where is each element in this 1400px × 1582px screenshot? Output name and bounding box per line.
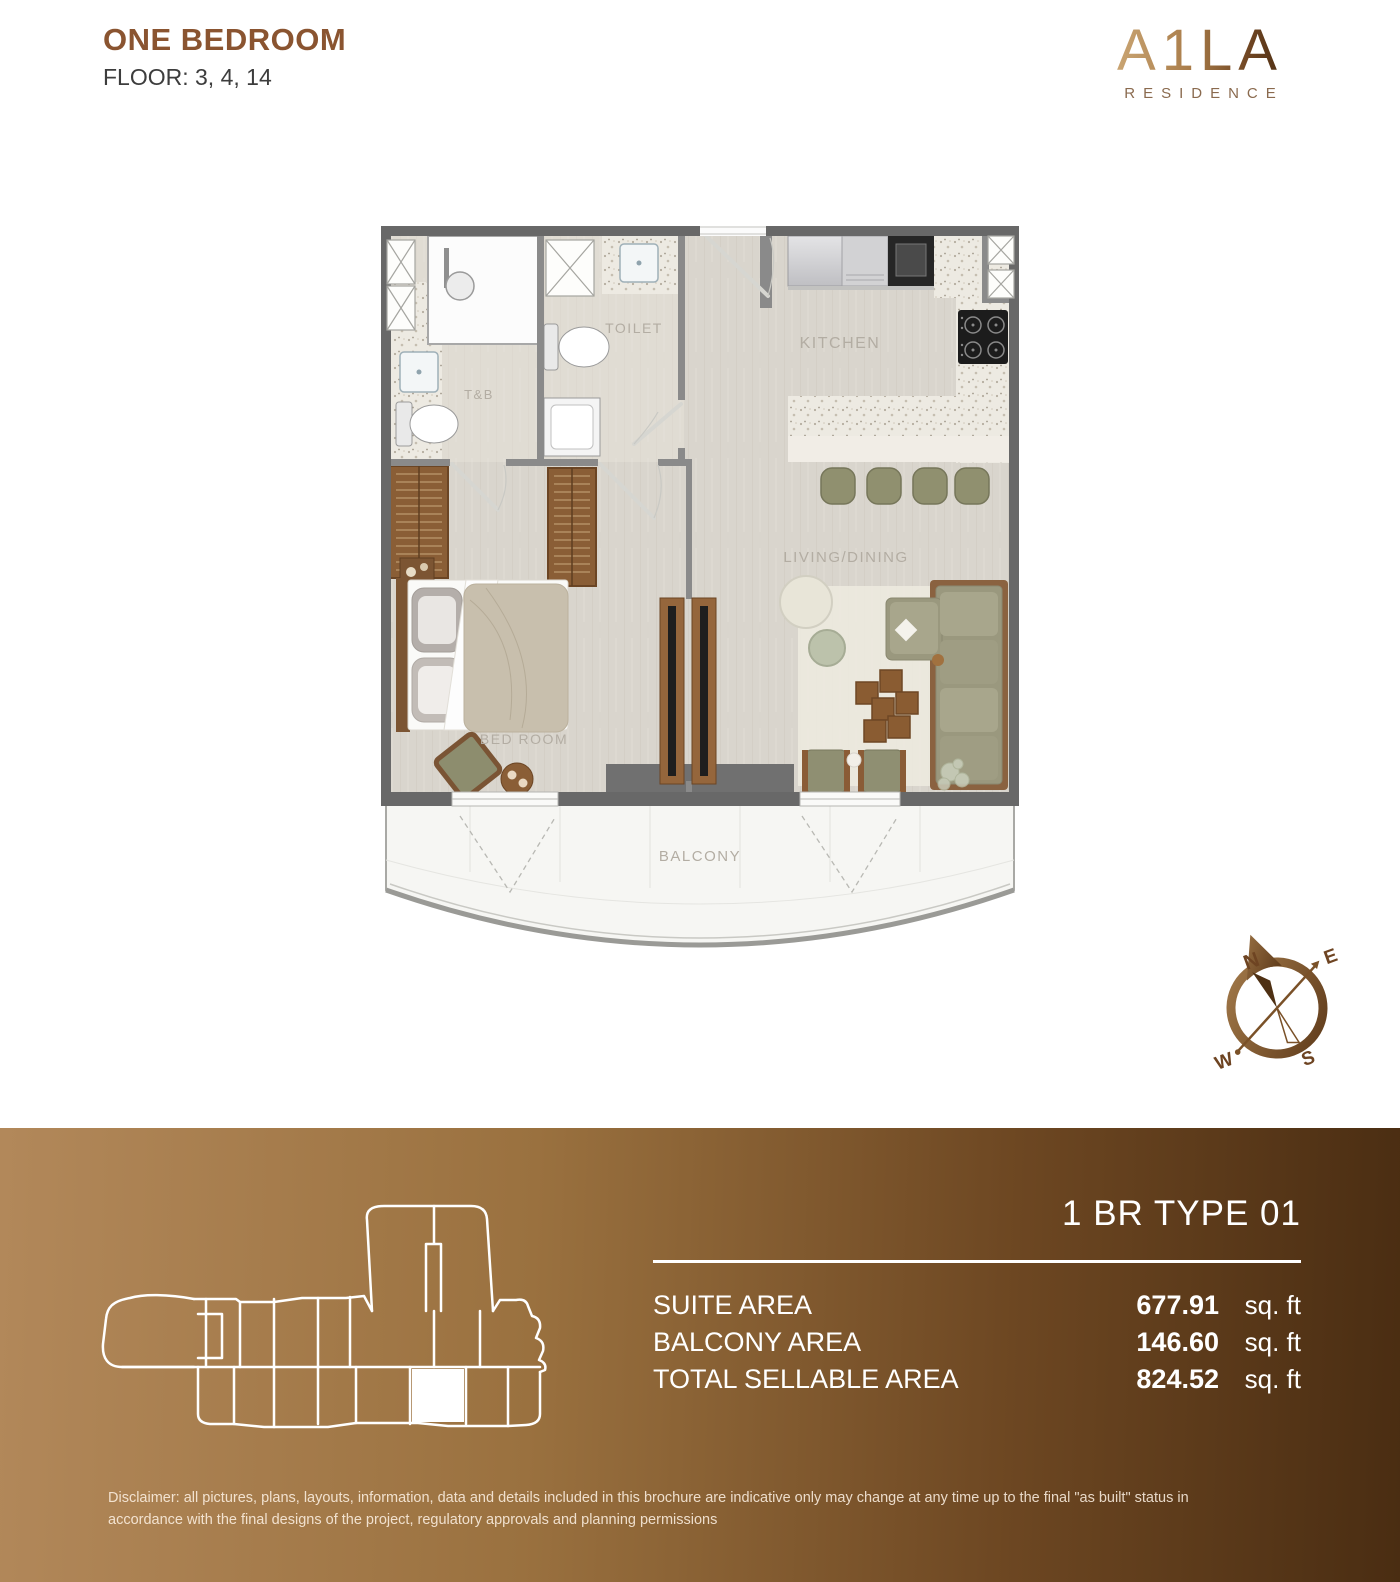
room-label-bedroom: BED ROOM bbox=[480, 731, 568, 747]
balcony bbox=[386, 798, 1014, 945]
brand-logo-mark: A1LA bbox=[1080, 18, 1320, 80]
floor-plan: T&B TOILET KITCHEN LIVING/DINING BED ROO… bbox=[376, 222, 1024, 968]
side-table bbox=[501, 763, 533, 795]
key-plan bbox=[88, 1186, 572, 1444]
room-label-tb: T&B bbox=[464, 387, 494, 402]
brand-name: A1LA bbox=[1117, 18, 1283, 80]
area-unit: sq. ft bbox=[1219, 1324, 1301, 1361]
entry-opening bbox=[700, 226, 766, 236]
page: ONE BEDROOM FLOOR: 3, 4, 14 A1LA RESIDEN… bbox=[0, 0, 1400, 1582]
area-unit: sq. ft bbox=[1219, 1361, 1301, 1398]
compass-needle bbox=[1252, 968, 1280, 1012]
toilet-bowl bbox=[559, 327, 609, 367]
shower-head bbox=[446, 272, 474, 300]
key-plan-highlighted-unit bbox=[412, 1369, 464, 1422]
room-label-living: LIVING/DINING bbox=[783, 549, 908, 566]
area-row-total: TOTAL SELLABLE AREA 824.52 sq. ft bbox=[653, 1361, 1301, 1398]
room-label-balcony: BALCONY bbox=[659, 848, 741, 865]
tb-toilet bbox=[410, 405, 458, 443]
kitchen-island bbox=[788, 396, 1014, 436]
toilet-tank bbox=[544, 324, 558, 370]
room-label-kitchen: KITCHEN bbox=[800, 335, 881, 352]
brand-tagline: RESIDENCE bbox=[1080, 85, 1320, 102]
room-label-toilet: TOILET bbox=[605, 320, 663, 336]
compass: N E W S bbox=[1192, 916, 1362, 1086]
page-title: ONE BEDROOM bbox=[103, 22, 346, 58]
floor-numbers: FLOOR: 3, 4, 14 bbox=[103, 64, 346, 91]
area-row-balcony: BALCONY AREA 146.60 sq. ft bbox=[653, 1324, 1301, 1361]
dishwasher bbox=[842, 236, 888, 286]
disclaimer-text: Disclaimer: all pictures, plans, layouts… bbox=[108, 1487, 1198, 1532]
duvet bbox=[464, 584, 568, 732]
area-info: 1 BR TYPE 01 SUITE AREA 677.91 sq. ft BA… bbox=[653, 1194, 1301, 1398]
area-value: 677.91 bbox=[1089, 1287, 1219, 1324]
unit-type-label: 1 BR TYPE 01 bbox=[653, 1194, 1301, 1234]
area-value: 824.52 bbox=[1089, 1361, 1219, 1398]
area-label: TOTAL SELLABLE AREA bbox=[653, 1361, 1089, 1398]
area-row-suite: SUITE AREA 677.91 sq. ft bbox=[653, 1287, 1301, 1324]
compass-s: S bbox=[1299, 1047, 1318, 1071]
fridge bbox=[788, 236, 842, 286]
bed bbox=[396, 558, 568, 732]
area-value: 146.60 bbox=[1089, 1324, 1219, 1361]
compass-e: E bbox=[1321, 945, 1340, 969]
header: ONE BEDROOM FLOOR: 3, 4, 14 bbox=[103, 22, 346, 91]
area-label: SUITE AREA bbox=[653, 1287, 1089, 1324]
footer: 1 BR TYPE 01 SUITE AREA 677.91 sq. ft BA… bbox=[0, 1128, 1400, 1582]
divider-line bbox=[653, 1260, 1301, 1263]
key-plan-tower bbox=[367, 1206, 493, 1311]
compass-w: W bbox=[1212, 1049, 1236, 1075]
area-label: BALCONY AREA bbox=[653, 1324, 1089, 1361]
area-unit: sq. ft bbox=[1219, 1287, 1301, 1324]
brand-logo: A1LA RESIDENCE bbox=[1080, 18, 1320, 102]
